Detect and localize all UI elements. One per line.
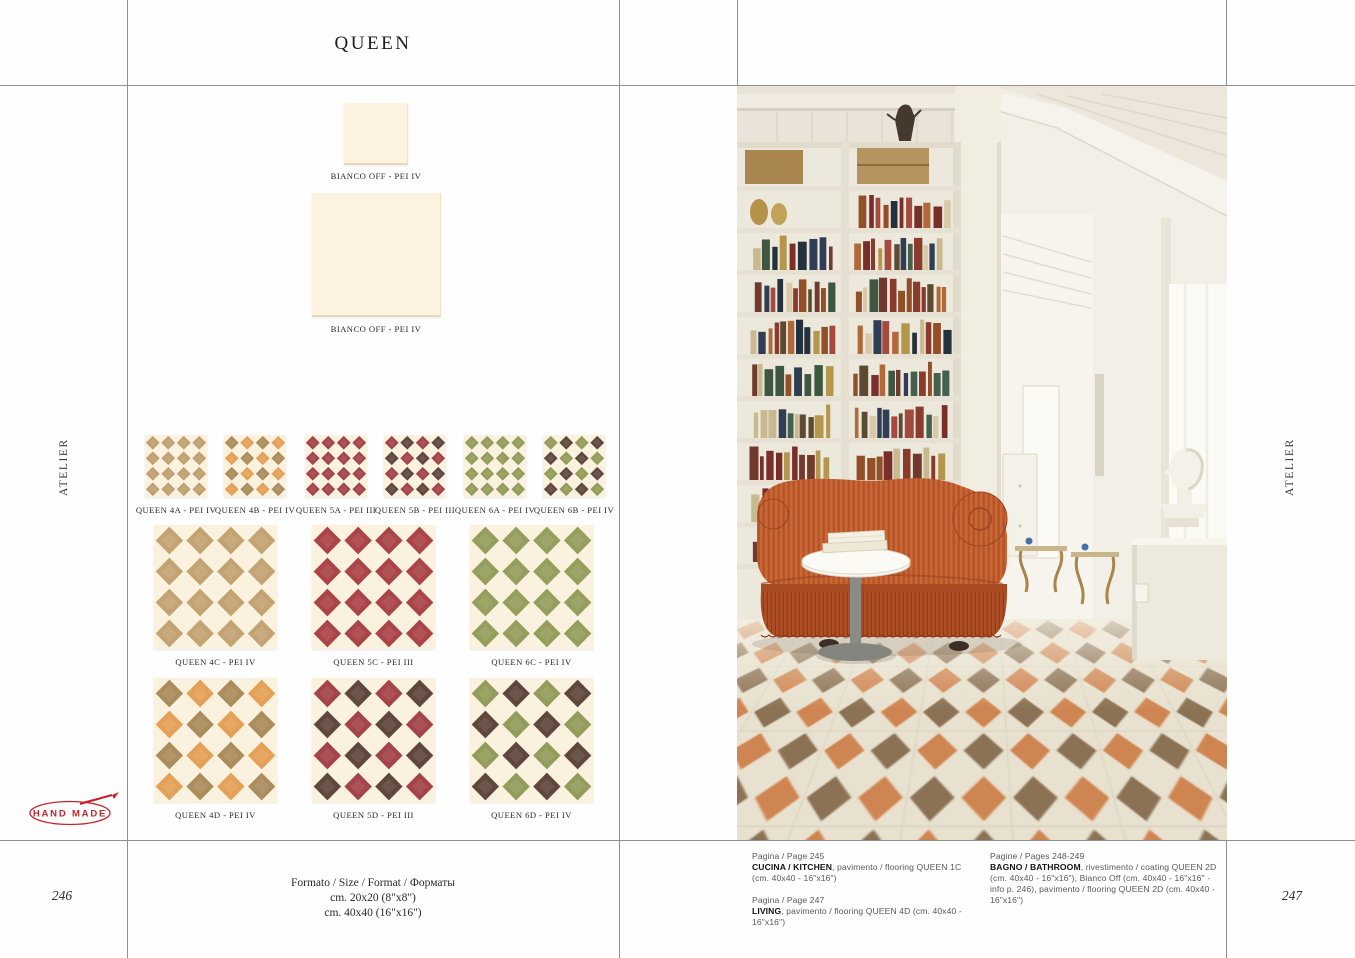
tile-bianco-off-small: [344, 103, 408, 165]
photo-console-table: [1071, 544, 1119, 605]
tile-swatch: [154, 525, 277, 649]
tile-swatch: [312, 525, 435, 649]
format-line-2: cm. 20x20 (8"x8"): [127, 891, 619, 906]
tile-swatch: [470, 525, 593, 649]
rule-photo-left: [737, 0, 738, 85]
tile-label: QUEEN 4D - PEI IV: [154, 810, 277, 820]
tile-swatch: [145, 435, 207, 497]
room-photo-living: [737, 86, 1227, 840]
tile-swatch: [543, 435, 605, 497]
caption-head: Pagina / Page 245: [752, 851, 966, 862]
swatch-queen-4c: QUEEN 4C - PEI IV: [154, 525, 277, 667]
format-block: Formato / Size / Format / Форматы cm. 20…: [127, 876, 619, 921]
caption-bold: CUCINA / KITCHEN: [752, 862, 832, 872]
tile-label: BIANCO OFF - PEI IV: [300, 171, 452, 181]
swatch-queen-6d: QUEEN 6D - PEI IV: [470, 678, 593, 820]
tile-label: QUEEN 5D - PEI III: [312, 810, 435, 820]
caption-bold: LIVING: [752, 906, 781, 916]
page-number-right: 247: [1260, 888, 1324, 904]
caption-entry: Pagine / Pages 248-249 BAGNO / BATHROOM,…: [990, 851, 1218, 906]
caption-bold: BAGNO / BATHROOM: [990, 862, 1081, 872]
caption-head: Pagine / Pages 248-249: [990, 851, 1218, 862]
tile-swatch: [154, 678, 277, 802]
tile-label: QUEEN 6B - PEI IV: [526, 505, 622, 515]
tile-label: BIANCO OFF - PEI IV: [300, 324, 452, 334]
tile-swatch: [384, 435, 446, 497]
swatch-queen-6c: QUEEN 6C - PEI IV: [470, 525, 593, 667]
photo-foreground: [737, 86, 1227, 840]
rule-bottom: [0, 840, 1355, 841]
tile-swatch: [305, 435, 367, 497]
swatch-queen-6b: QUEEN 6B - PEI IV: [526, 435, 622, 515]
page-number-left: 246: [30, 888, 94, 904]
tile-swatch: [470, 678, 593, 802]
caption-head: Pagina / Page 247: [752, 895, 966, 906]
format-line-1: Formato / Size / Format / Форматы: [127, 876, 619, 891]
tile-label: QUEEN 6D - PEI IV: [470, 810, 593, 820]
page-title: QUEEN: [127, 33, 619, 55]
tile-swatch: [464, 435, 526, 497]
tile-swatch: [312, 678, 435, 802]
caption-column-left: Pagina / Page 245 CUCINA / KITCHEN, pavi…: [752, 851, 966, 939]
handmade-logo: HAND MADE: [24, 791, 120, 834]
catalog-spread: QUEEN ATELIER ATELIER 246 247 HAND MADE …: [0, 0, 1355, 958]
caption-column-right: Pagine / Pages 248-249 BAGNO / BATHROOM,…: [990, 851, 1218, 917]
caption-rest: , pavimento / flooring QUEEN 4D (cm. 40x…: [752, 906, 962, 927]
photo-console-table: [1015, 538, 1067, 593]
photo-light-switch: [1135, 584, 1148, 602]
tile-swatch: [224, 435, 286, 497]
tile-label: QUEEN 6C - PEI IV: [470, 657, 593, 667]
caption-entry: Pagina / Page 245 CUCINA / KITCHEN, pavi…: [752, 851, 966, 884]
format-line-3: cm. 40x40 (16"x16"): [127, 906, 619, 921]
handmade-label: HAND MADE: [33, 809, 107, 820]
tile-label: QUEEN 4C - PEI IV: [154, 657, 277, 667]
caption-entry: Pagina / Page 247 LIVING, pavimento / fl…: [752, 895, 966, 928]
series-label-right: ATELIER: [1284, 432, 1296, 496]
tile-bianco-off-large: [312, 193, 441, 317]
swatch-queen-5c: QUEEN 5C - PEI III: [312, 525, 435, 667]
swatch-queen-4d: QUEEN 4D - PEI IV: [154, 678, 277, 820]
series-label-left: ATELIER: [58, 432, 70, 496]
photo-bust: [1161, 449, 1207, 527]
swatch-queen-5d: QUEEN 5D - PEI III: [312, 678, 435, 820]
tile-label: QUEEN 5C - PEI III: [312, 657, 435, 667]
photo-books-on-table: [822, 530, 887, 552]
